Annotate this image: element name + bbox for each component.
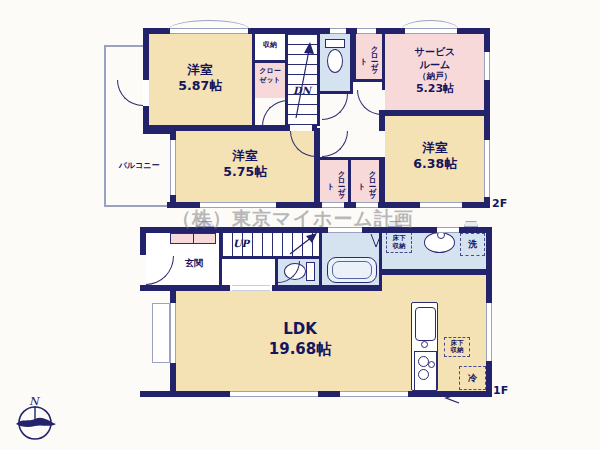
stairs-up-label: UP xyxy=(228,237,254,250)
ldk-room-upper xyxy=(382,275,486,291)
wall xyxy=(382,269,486,275)
hall-1f xyxy=(222,259,275,285)
wall xyxy=(379,231,382,285)
room-name: LDK xyxy=(230,320,370,340)
room-size: 19.68帖 xyxy=(230,340,370,360)
wall xyxy=(140,285,230,291)
burner-small xyxy=(428,361,435,368)
vent xyxy=(464,221,478,227)
compass: N xyxy=(8,392,62,446)
bathtub xyxy=(327,257,377,283)
floor1-label: 1F xyxy=(493,384,519,398)
cabinet-divider xyxy=(193,234,194,243)
toilet-tank-1f xyxy=(306,262,315,281)
floor-plan-canvas: バルコニー xyxy=(0,0,600,450)
ufs-line2: 収納 xyxy=(393,243,406,250)
shutter-box xyxy=(152,303,170,363)
window xyxy=(486,303,492,361)
wall xyxy=(319,231,322,285)
kitchen-faucet xyxy=(421,341,428,348)
window xyxy=(170,303,176,363)
window xyxy=(340,391,408,397)
burner xyxy=(418,369,429,380)
ldk-label: LDK 19.68帖 xyxy=(230,320,370,359)
wall xyxy=(170,291,176,303)
wall xyxy=(140,227,146,255)
wash-basin xyxy=(424,232,455,253)
entrance-label: 玄関 xyxy=(172,258,216,270)
window xyxy=(230,391,318,397)
shoe-cabinet xyxy=(170,233,216,244)
wall xyxy=(272,285,382,291)
watermark-text: （株）東京マイホーム計画 xyxy=(172,206,442,232)
fridge-space: 冷 xyxy=(459,366,486,390)
laundry-label: 洗 xyxy=(468,238,477,251)
opening xyxy=(232,285,270,291)
kitchen-counter xyxy=(411,302,438,391)
underfloor-storage-bath: 床下 収納 xyxy=(386,232,412,253)
fridge-label: 冷 xyxy=(468,372,477,385)
wall xyxy=(170,363,176,391)
laundry-space: 洗 xyxy=(460,233,485,256)
underfloor-storage-kitchen: 床下 収納 xyxy=(444,337,470,357)
compass-north-label: N xyxy=(29,395,41,408)
wall xyxy=(222,256,322,259)
stove xyxy=(414,351,437,391)
bathtub-inner xyxy=(332,261,372,279)
kitchen-sink xyxy=(415,307,436,341)
ufs-k-line2: 収納 xyxy=(451,347,464,354)
